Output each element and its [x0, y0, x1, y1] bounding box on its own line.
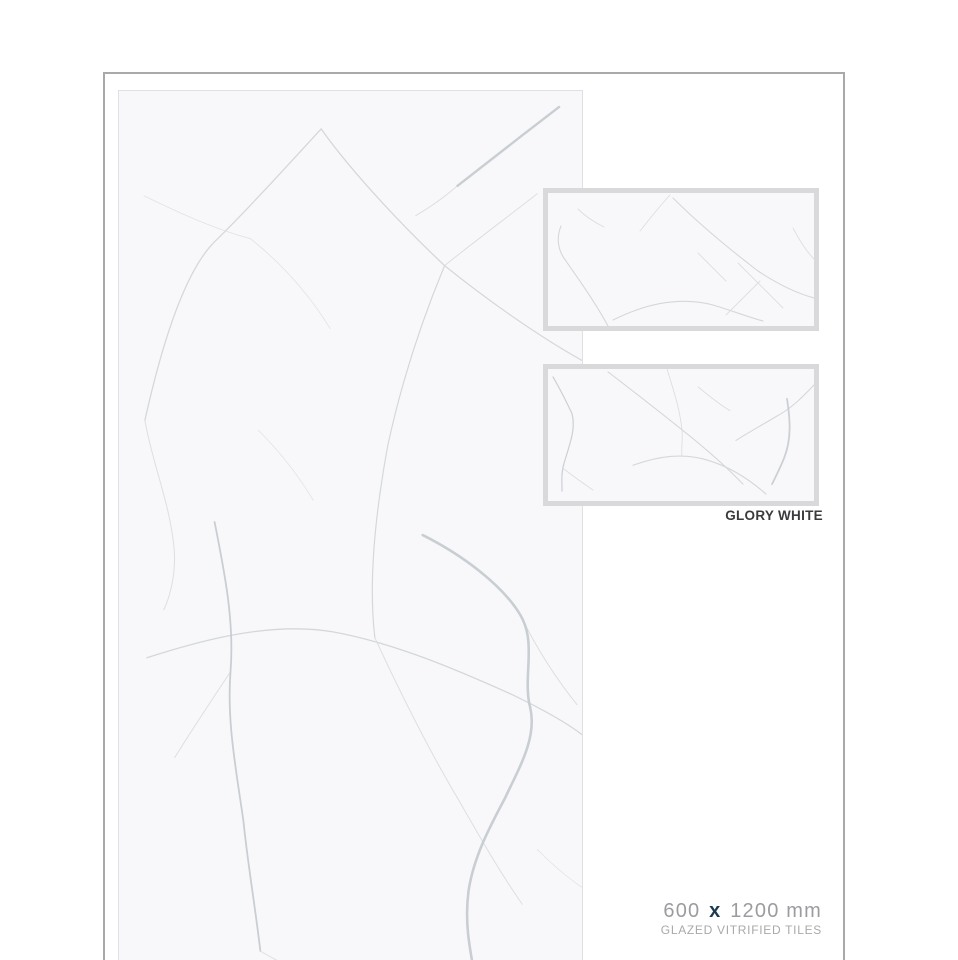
size-height: 1200 mm — [730, 900, 822, 922]
size-separator: x — [707, 900, 723, 922]
tile-swatch-1 — [543, 188, 819, 331]
size-width: 600 — [663, 900, 700, 922]
tile-type-label: GLAZED VITRIFIED TILES — [661, 923, 822, 937]
marble-veins-swatch-1 — [548, 193, 814, 326]
catalog-page: GLORY WHITE 600 x 1200 mm GLAZED VITRIFI… — [0, 0, 958, 960]
product-name-label: GLORY WHITE — [725, 508, 823, 523]
main-tile-image — [118, 90, 583, 960]
product-specs: 600 x 1200 mm GLAZED VITRIFIED TILES — [661, 900, 822, 937]
tile-swatch-2 — [543, 364, 819, 506]
size-text: 600 x 1200 mm — [661, 900, 822, 922]
marble-veins-swatch-2 — [548, 369, 814, 501]
marble-veins-large — [119, 91, 582, 960]
